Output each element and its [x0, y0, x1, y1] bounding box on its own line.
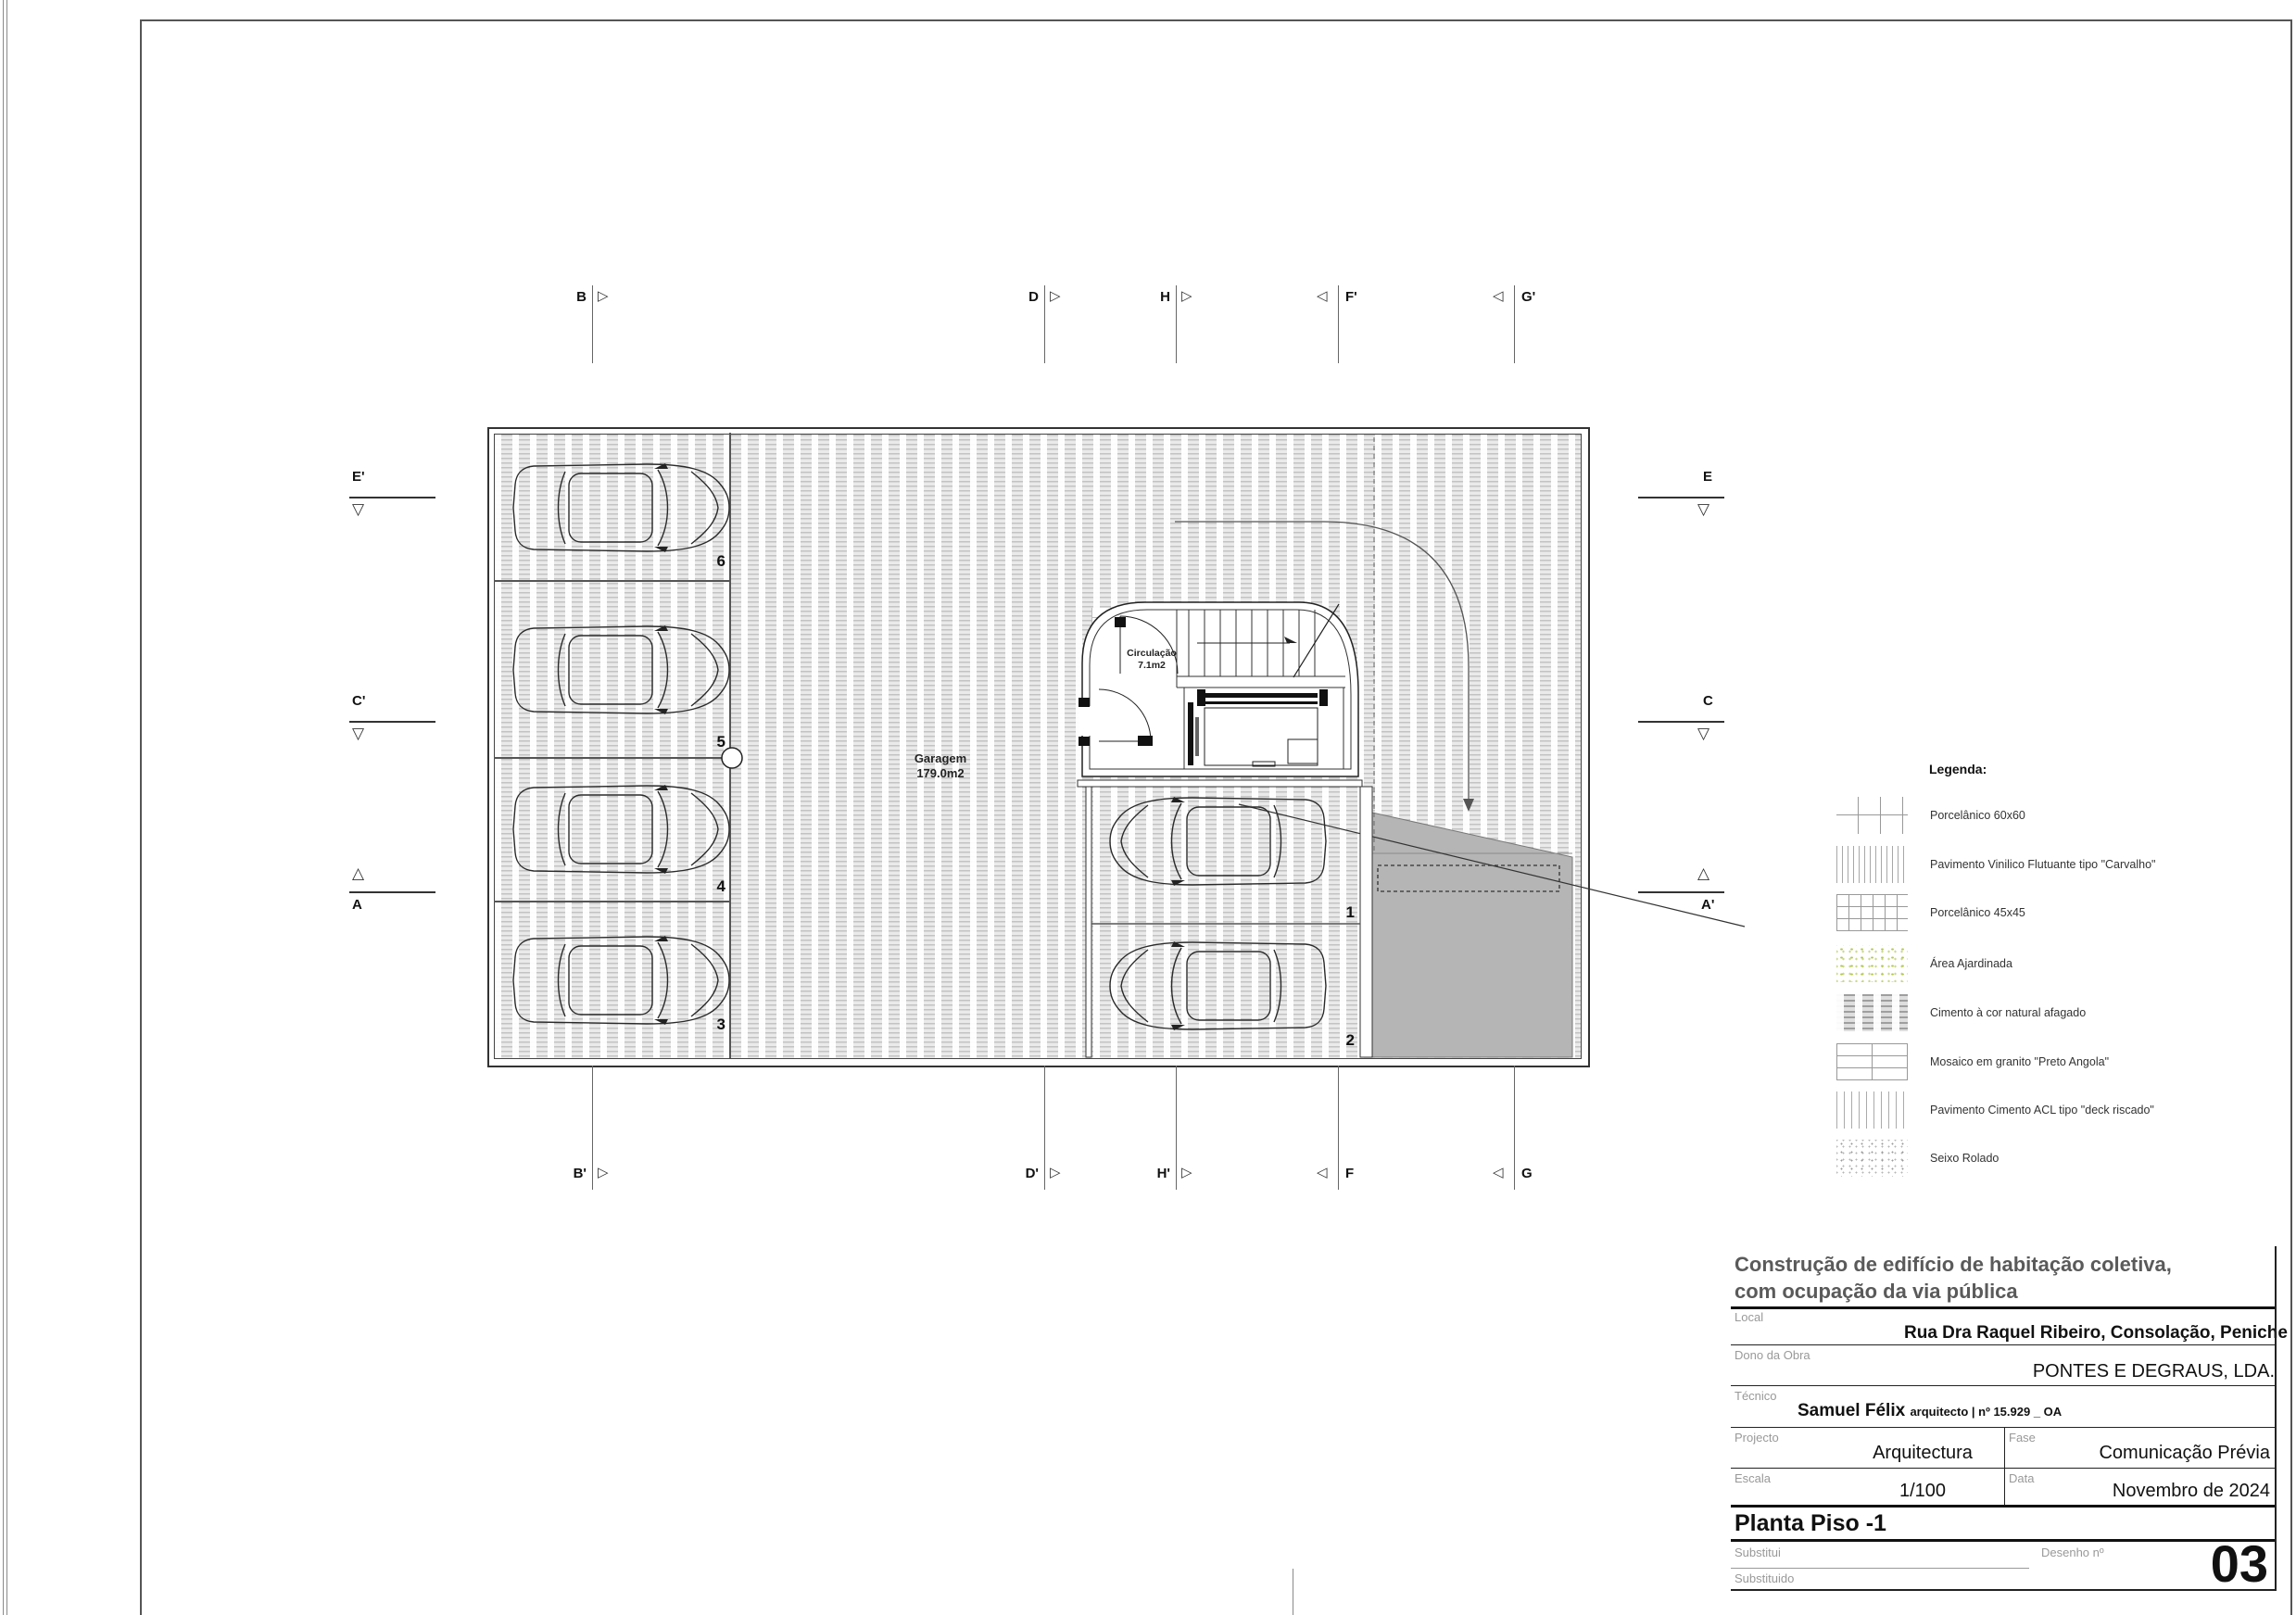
car-spot-1 — [1110, 797, 1326, 886]
garage-room-label: Garagem 179.0m2 — [885, 751, 996, 781]
drawing-no-value: 03 — [2122, 1538, 2268, 1590]
title-block-rule — [1731, 1344, 2275, 1345]
section-line-a — [349, 891, 435, 893]
section-label-h2: H' — [1144, 1166, 1170, 1182]
pattern-swatch-granite-icon — [1836, 1043, 1908, 1080]
section-line-e-prime — [349, 497, 435, 498]
section-label-d: D — [1016, 289, 1039, 306]
owner-value: PONTES E DEGRAUS, LDA. — [1904, 1361, 2275, 1382]
legend-item-label: Porcelânico 60x60 — [1930, 797, 2025, 834]
spot-number: 1 — [1329, 903, 1355, 922]
drawing-no-label: Desenho nº — [2041, 1546, 2104, 1559]
replaced-label: Substituido — [1735, 1571, 1794, 1585]
section-arrow-icon: ◁ — [1317, 287, 1328, 304]
circulation-room-label: Circulação 7.1m2 — [1105, 648, 1198, 672]
pattern-swatch-vinyl-icon — [1836, 846, 1908, 883]
section-line-d2 — [1044, 1066, 1045, 1190]
phase-value: Comunicação Prévia — [2011, 1443, 2270, 1464]
title-block-divider — [2004, 1427, 2005, 1468]
spot-number: 2 — [1329, 1031, 1355, 1050]
circulation-name: Circulação — [1105, 648, 1198, 660]
section-line-c-prime — [349, 721, 435, 723]
section-label-b: B — [564, 289, 587, 306]
date-value: Novembro de 2024 — [2011, 1481, 2270, 1502]
section-line-c — [1638, 721, 1724, 723]
local-value: Rua Dra Raquel Ribeiro, Consolação, Peni… — [1904, 1323, 2275, 1344]
section-arrow-icon: ◁ — [1317, 1164, 1328, 1180]
project-title-line1: Construção de edifício de habitação cole… — [1735, 1253, 2172, 1277]
pattern-swatch-cement-icon — [1836, 994, 1908, 1031]
title-block-right-border — [2275, 1246, 2277, 1590]
legend-item-label: Pavimento Cimento ACL tipo "deck riscado… — [1930, 1091, 2154, 1129]
section-label-d2: D' — [1013, 1166, 1039, 1182]
title-block-rule — [1731, 1505, 2275, 1508]
section-label-c: C — [1703, 693, 1713, 710]
car-spot-6 — [513, 463, 729, 552]
section-line-e — [1638, 497, 1724, 498]
section-arrow-icon: ▷ — [598, 1164, 609, 1180]
section-arrow-icon: ▽ — [1697, 501, 1709, 518]
technician-label: Técnico — [1735, 1389, 1777, 1403]
section-arrow-icon: △ — [352, 865, 364, 882]
section-label-c-prime: C' — [352, 693, 365, 710]
technician-title: arquitecto | nº 15.929 _ OA — [1910, 1405, 2062, 1419]
section-label-b2: B' — [561, 1166, 587, 1182]
section-line-f-prime — [1338, 285, 1339, 363]
title-block-rule — [1731, 1385, 2275, 1386]
legend-item-label: Área Ajardinada — [1930, 945, 2012, 982]
section-line-f — [1338, 1066, 1339, 1190]
title-block-divider — [2004, 1468, 2005, 1505]
section-arrow-icon: ◁ — [1493, 287, 1504, 304]
title-block-rule — [1731, 1306, 2275, 1309]
spot-number: 5 — [700, 733, 725, 751]
section-label-f-prime: F' — [1345, 289, 1369, 306]
section-label-g-prime: G' — [1521, 289, 1545, 306]
garage-name: Garagem — [885, 751, 996, 766]
section-arrow-icon: ◁ — [1493, 1164, 1504, 1180]
garage-area: 179.0m2 — [885, 766, 996, 781]
section-label-e: E — [1703, 469, 1712, 486]
replaces-label: Substitui — [1735, 1546, 1781, 1559]
title-block-bottom-border — [1731, 1589, 2277, 1591]
legend-title: Legenda: — [1929, 762, 1987, 776]
section-label-a-prime: A' — [1701, 897, 1714, 914]
stair-elevator-block — [1079, 602, 1358, 776]
section-arrow-icon: ▷ — [1181, 287, 1192, 304]
section-arrow-icon: ▷ — [598, 287, 609, 304]
section-line-d — [1044, 285, 1045, 363]
legend-item-label: Pavimento Vinilico Flutuante tipo "Carva… — [1930, 846, 2156, 883]
legend-item-label: Mosaico em granito "Preto Angola" — [1930, 1043, 2109, 1080]
project-title-line2: com ocupação da via pública — [1735, 1280, 2018, 1304]
section-arrow-icon: ▷ — [1181, 1164, 1192, 1180]
project-label: Projecto — [1735, 1431, 1779, 1445]
section-arrow-icon: ▽ — [352, 725, 364, 742]
pattern-swatch-garden-icon — [1836, 945, 1908, 982]
section-line-b2 — [592, 1066, 593, 1190]
spot-number: 6 — [700, 552, 725, 571]
pattern-swatch-pebble-icon — [1836, 1140, 1908, 1177]
local-label: Local — [1735, 1310, 1763, 1324]
car-spot-2 — [1110, 941, 1326, 1030]
section-arrow-icon: ▽ — [352, 501, 364, 518]
section-arrow-icon: ▽ — [1697, 725, 1709, 742]
title-block-rule — [1731, 1468, 2275, 1469]
section-line-a-prime — [1638, 891, 1724, 893]
pattern-swatch-grid60-icon — [1836, 797, 1908, 834]
title-block-rule — [1731, 1427, 2275, 1428]
section-line-h — [1176, 285, 1177, 363]
owner-label: Dono da Obra — [1735, 1348, 1810, 1362]
drawing-name: Planta Piso -1 — [1735, 1510, 1886, 1537]
pattern-swatch-grid45-icon — [1836, 894, 1908, 931]
section-label-a: A — [352, 897, 362, 914]
section-arrow-icon: △ — [1697, 865, 1709, 882]
title-block-halfrule — [1731, 1568, 2029, 1569]
section-line-g-prime — [1514, 285, 1515, 363]
car-spot-5 — [513, 625, 729, 714]
pattern-swatch-deck-icon — [1836, 1091, 1908, 1129]
section-label-f: F — [1345, 1166, 1369, 1182]
drawing-sheet: Garagem 179.0m2 Circulação 7.1m2 6 5 4 3… — [0, 0, 2296, 1615]
section-label-h: H — [1148, 289, 1170, 306]
section-line-g — [1514, 1066, 1515, 1190]
car-spot-3 — [513, 936, 729, 1025]
section-line-b — [592, 285, 593, 363]
spot-number: 3 — [700, 1016, 725, 1034]
legend-item-label: Cimento à cor natural afagado — [1930, 994, 2086, 1031]
section-label-g: G — [1521, 1166, 1545, 1182]
section-arrow-icon: ▷ — [1050, 287, 1061, 304]
car-spot-4 — [513, 785, 729, 874]
legend-item-label: Seixo Rolado — [1930, 1140, 1999, 1177]
circulation-area: 7.1m2 — [1105, 660, 1198, 672]
section-arrow-icon: ▷ — [1050, 1164, 1061, 1180]
section-label-e-prime: E' — [352, 469, 365, 486]
scale-label: Escala — [1735, 1471, 1771, 1485]
spot-number: 4 — [700, 877, 725, 896]
technician-value: Samuel Félix arquitecto | nº 15.929 _ OA — [1798, 1401, 2062, 1421]
legend-item-label: Porcelânico 45x45 — [1930, 894, 2025, 931]
section-line-h2 — [1176, 1066, 1177, 1190]
ramp-slab — [1372, 813, 1572, 1057]
technician-name: Samuel Félix — [1798, 1401, 1905, 1420]
